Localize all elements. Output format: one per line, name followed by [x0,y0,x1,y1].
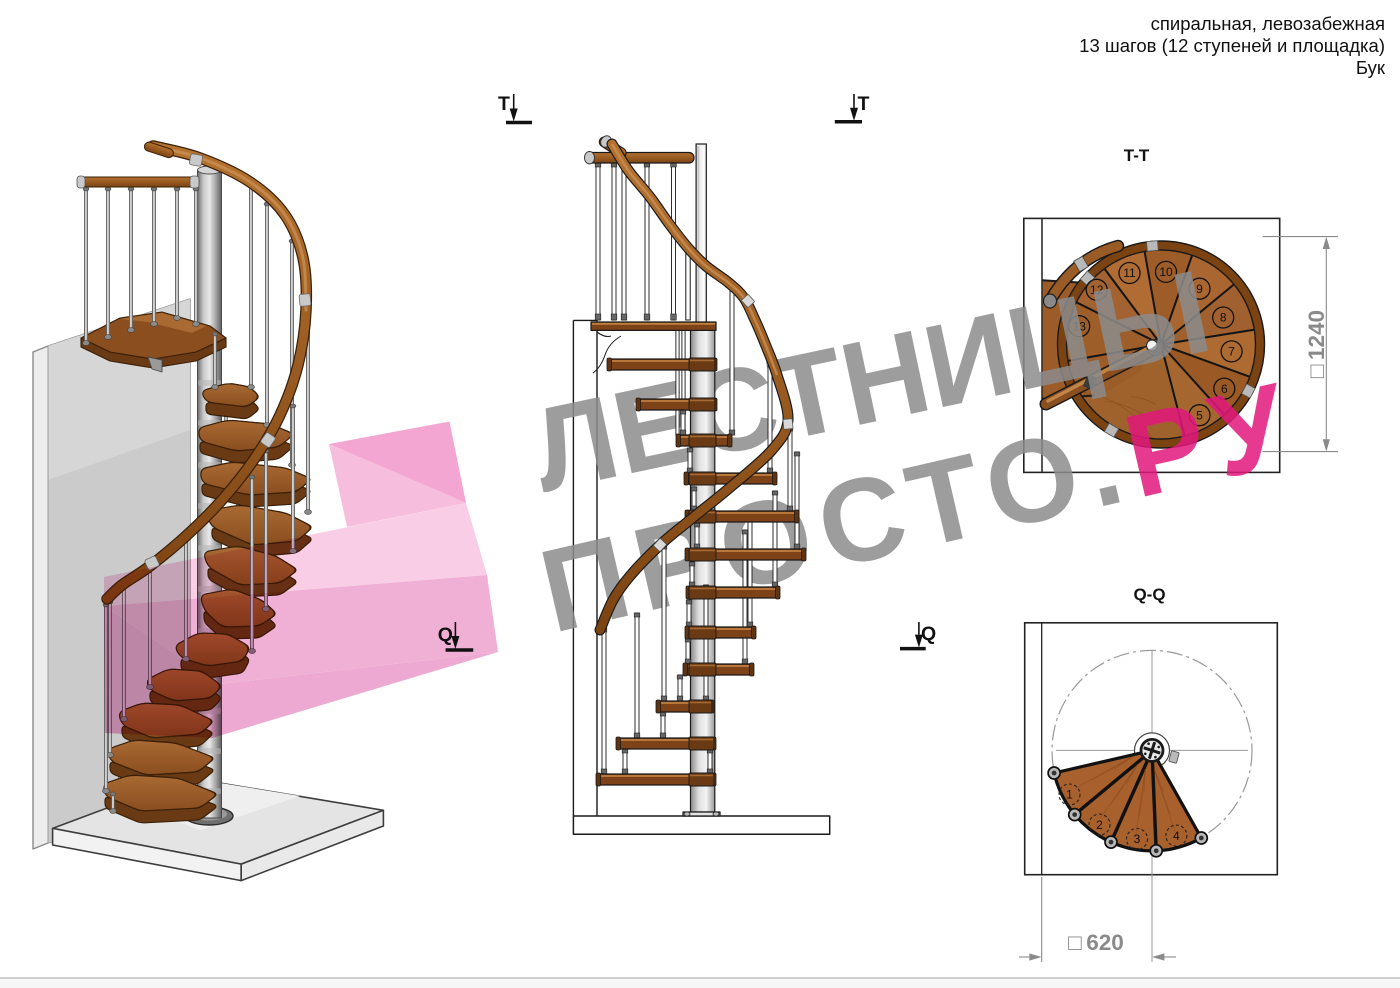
svg-text:Бук: Бук [1356,57,1386,78]
svg-text:T-T: T-T [1124,146,1150,165]
svg-text:2: 2 [1096,818,1103,832]
svg-text:8: 8 [1220,311,1227,325]
svg-text:Q: Q [438,624,453,646]
svg-text:□ 1240: □ 1240 [1304,310,1329,378]
svg-text:□ 620: □ 620 [1068,930,1124,955]
svg-text:T: T [498,93,510,115]
svg-text:1: 1 [1066,788,1073,802]
svg-text:4: 4 [1173,829,1180,843]
svg-text:спиральная, левозабежная: спиральная, левозабежная [1151,13,1385,34]
svg-text:13 шагов (12 ступеней и площад: 13 шагов (12 ступеней и площадка) [1079,35,1385,56]
svg-text:T: T [858,93,870,115]
svg-text:Q: Q [921,623,936,645]
svg-text:7: 7 [1228,345,1235,359]
svg-text:3: 3 [1134,832,1141,846]
svg-text:Q-Q: Q-Q [1133,585,1165,604]
